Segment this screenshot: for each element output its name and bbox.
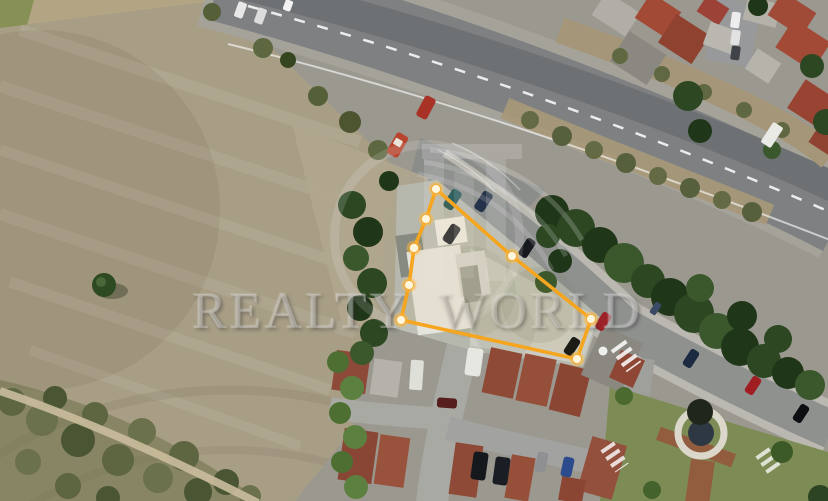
parcel-vertex[interactable]	[404, 280, 413, 289]
aerial-map-view: REALTY WORLD	[0, 0, 828, 501]
parcel-boundary-overlay	[0, 0, 828, 501]
parcel-vertex[interactable]	[409, 243, 418, 252]
parcel-vertex[interactable]	[421, 214, 430, 223]
parcel-vertex[interactable]	[586, 314, 595, 323]
parcel-vertex[interactable]	[572, 354, 581, 363]
parcel-vertex[interactable]	[396, 315, 405, 324]
parcel-vertex[interactable]	[507, 251, 516, 260]
parcel-vertex[interactable]	[431, 184, 440, 193]
